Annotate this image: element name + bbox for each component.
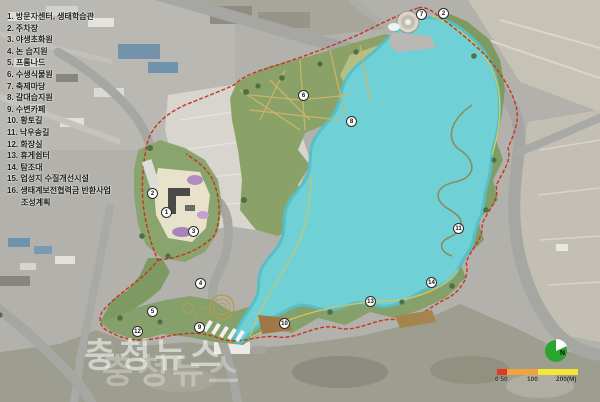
map-marker-7: 7 <box>416 9 427 20</box>
map-marker-11: 11 <box>453 223 464 234</box>
map-marker-8: 8 <box>346 116 357 127</box>
scale-segment-red <box>497 369 507 375</box>
legend-item: 14. 탐조대 <box>7 162 157 174</box>
legend: 1. 방문자센터, 생태학습관2. 주차장3. 야생초화원4. 논 습지원5. … <box>7 11 157 208</box>
map-marker-5: 5 <box>147 306 158 317</box>
map-marker-10: 10 <box>279 318 290 329</box>
scale-bar: 0 50100200(M) <box>497 369 581 385</box>
map-marker-6: 6 <box>298 90 309 101</box>
legend-item: 11. 낙우송길 <box>7 127 157 139</box>
legend-item: 6. 수생식물원 <box>7 69 157 81</box>
legend-item: 16. 생태계보전협력금 반환사업 <box>7 185 157 197</box>
map-marker-1: 1 <box>161 207 172 218</box>
legend-item: 5. 프롬나드 <box>7 57 157 69</box>
map-marker-4: 4 <box>195 278 206 289</box>
legend-item: 15. 업성지 수질개선시설 <box>7 173 157 185</box>
legend-item: 7. 축제마당 <box>7 81 157 93</box>
map-marker-3: 3 <box>188 226 199 237</box>
map-marker-2: 2 <box>438 8 449 19</box>
legend-item: 9. 수변카페 <box>7 104 157 116</box>
legend-item: 4. 논 습지원 <box>7 46 157 58</box>
legend-item: 13. 휴게쉼터 <box>7 150 157 162</box>
scale-bar-segments <box>497 369 581 375</box>
scale-tick: 100 <box>527 376 538 383</box>
legend-item: 3. 야생초화원 <box>7 34 157 46</box>
flower-bed <box>197 211 209 219</box>
legend-item: 8. 갈대습지원 <box>7 92 157 104</box>
legend-item: 12. 화장실 <box>7 139 157 151</box>
north-arrow-icon <box>540 335 574 369</box>
map-marker-14: 14 <box>426 277 437 288</box>
north-symbol: N <box>540 335 574 369</box>
legend-item: 2. 주차장 <box>7 23 157 35</box>
map-marker-13: 13 <box>365 296 376 307</box>
scale-segment-yellow <box>538 369 578 375</box>
flower-bed <box>187 175 203 185</box>
legend-item: 1. 방문자센터, 생태학습관 <box>7 11 157 23</box>
north-label: N <box>560 350 565 357</box>
legend-item: 10. 황토길 <box>7 115 157 127</box>
watermark-ghost: 충청뉴스 <box>102 344 243 393</box>
scale-tick: 200(M) <box>556 376 577 383</box>
scale-tick: 0 50 <box>495 376 508 383</box>
scale-segment-orange <box>507 369 538 375</box>
visitor-center-building <box>168 188 190 196</box>
site-plan-image: 1. 방문자센터, 생태학습관2. 주차장3. 야생초화원4. 논 습지원5. … <box>0 0 600 402</box>
legend-item: 조성계획 <box>7 197 157 209</box>
